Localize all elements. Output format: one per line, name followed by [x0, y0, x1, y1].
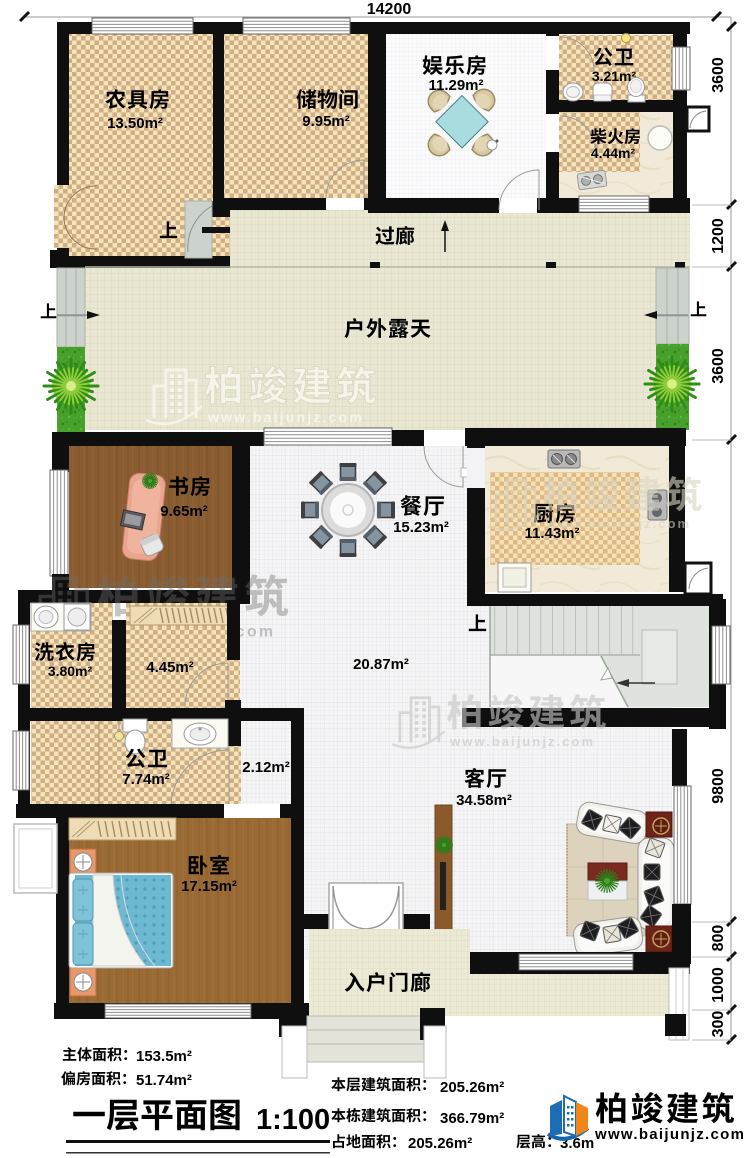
- svg-text:4.45m²: 4.45m²: [146, 659, 194, 676]
- svg-text:3.21m²: 3.21m²: [592, 68, 637, 84]
- svg-text:3600: 3600: [710, 57, 727, 93]
- svg-text:205.26m²: 205.26m²: [440, 1079, 504, 1096]
- svg-text:www.baijunjz.com: www.baijunjz.com: [594, 1126, 745, 1143]
- svg-text:15.23m²: 15.23m²: [393, 519, 449, 536]
- svg-text:3.80m²: 3.80m²: [48, 663, 93, 679]
- svg-text:153.5m²: 153.5m²: [136, 1048, 192, 1065]
- svg-text:www.baijunjz.com: www.baijunjz.com: [207, 409, 364, 425]
- svg-text:9800: 9800: [710, 768, 727, 804]
- svg-text:1000: 1000: [710, 967, 727, 1003]
- svg-text:9.65m²: 9.65m²: [160, 503, 208, 520]
- svg-text:www.baijunjz.com: www.baijunjz.com: [545, 516, 691, 531]
- svg-text:17.15m²: 17.15m²: [181, 878, 237, 895]
- svg-text:14200: 14200: [367, 1, 412, 18]
- svg-text:34.58m²: 34.58m²: [456, 792, 512, 809]
- svg-text:51.74m²: 51.74m²: [136, 1072, 192, 1089]
- svg-text:9.95m²: 9.95m²: [302, 113, 350, 130]
- svg-text:13.50m²: 13.50m²: [107, 115, 163, 132]
- svg-text:1200: 1200: [710, 218, 727, 254]
- svg-text:300: 300: [710, 1011, 727, 1038]
- svg-text:2.12m²: 2.12m²: [242, 759, 290, 776]
- svg-text:4.44m²: 4.44m²: [591, 145, 636, 161]
- svg-text:3600: 3600: [710, 348, 727, 384]
- svg-text:1:100: 1:100: [256, 1104, 330, 1136]
- svg-text:205.26m²: 205.26m²: [408, 1135, 472, 1152]
- svg-text:800: 800: [710, 925, 727, 952]
- svg-text:7.74m²: 7.74m²: [122, 771, 170, 788]
- svg-text:20.87m²: 20.87m²: [353, 656, 409, 673]
- svg-text:www.baijunjz.com: www.baijunjz.com: [449, 734, 595, 749]
- svg-text:11.29m²: 11.29m²: [428, 77, 483, 94]
- svg-text:366.79m²: 366.79m²: [440, 1110, 504, 1127]
